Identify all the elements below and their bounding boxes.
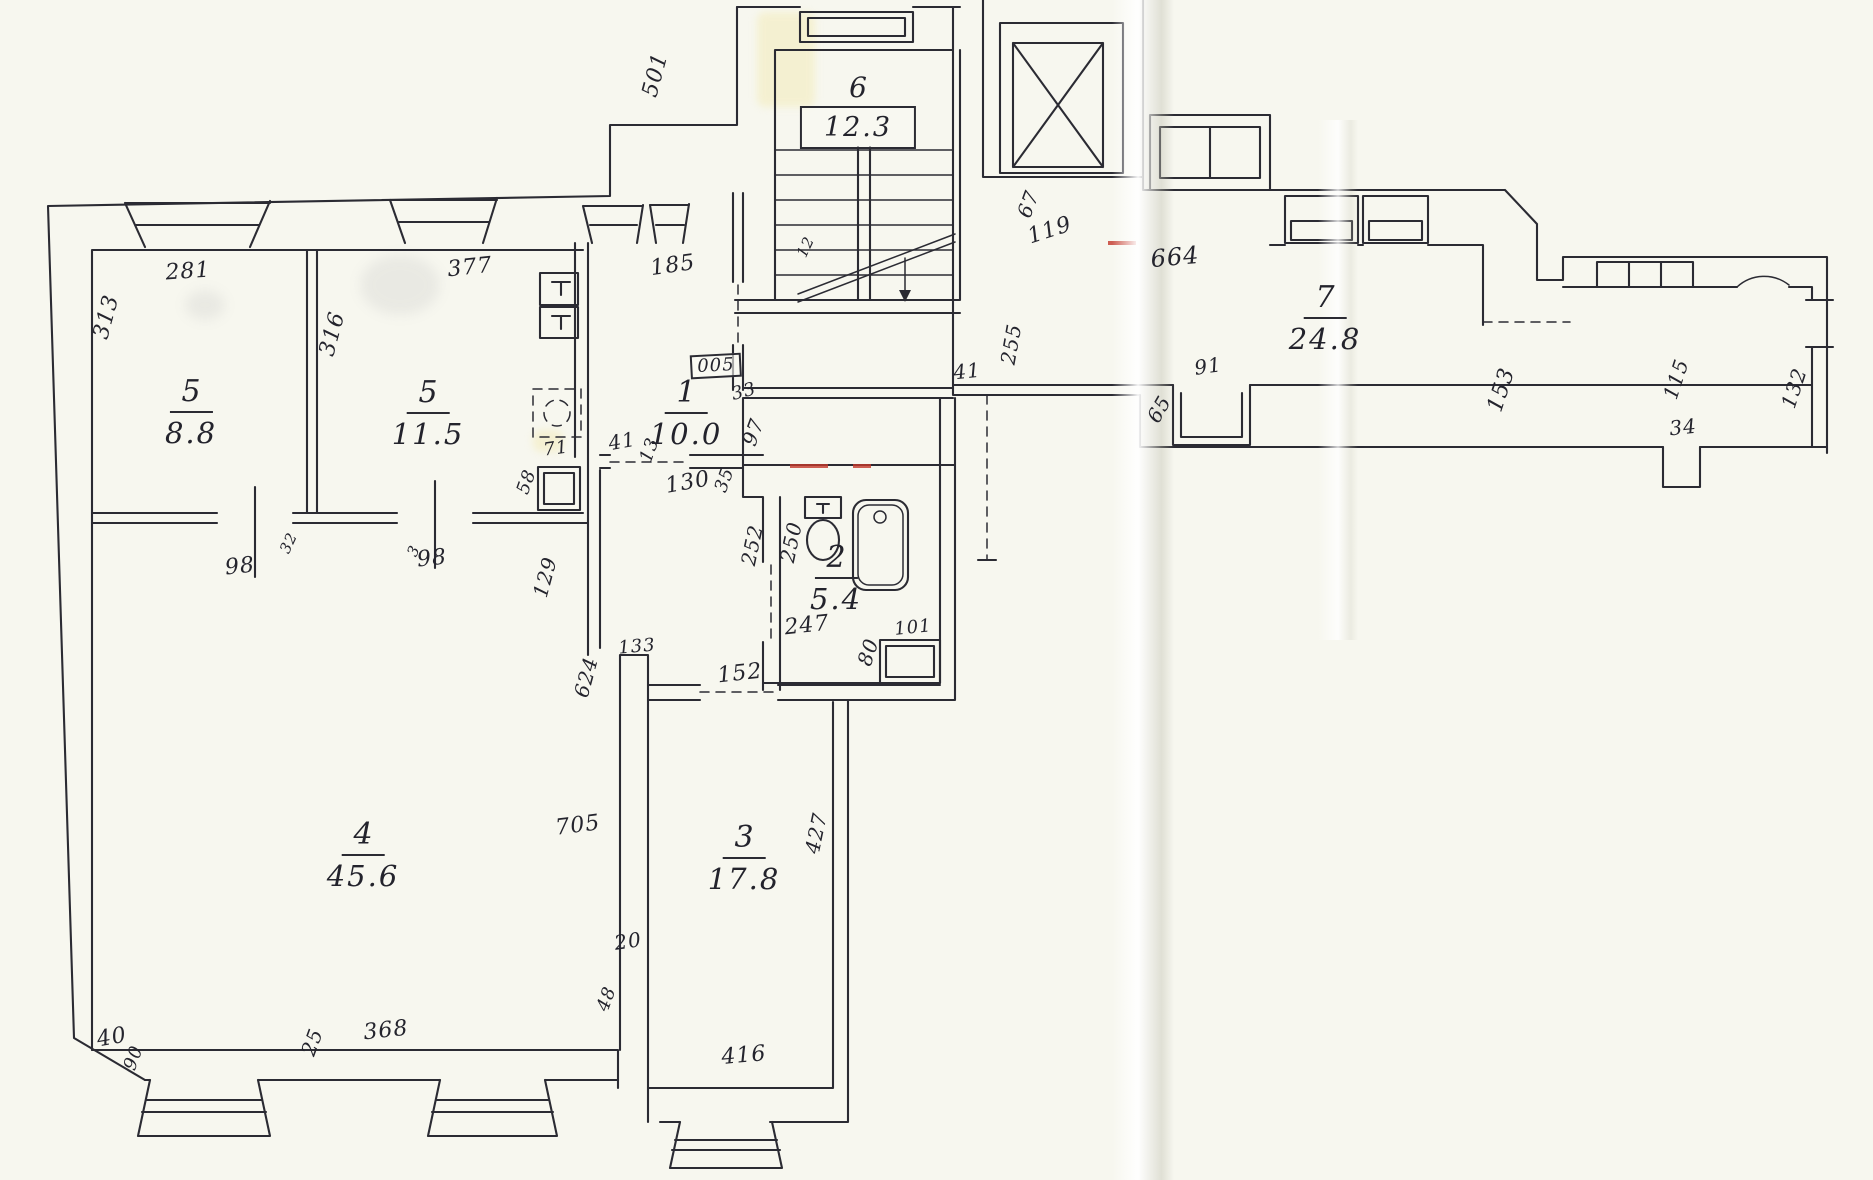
elevator-icon: [983, 0, 1143, 177]
room-label: 445.6: [327, 817, 400, 893]
dimension-label: 34: [1668, 416, 1697, 439]
dimension-label: 101: [893, 617, 932, 639]
room-number: 4: [341, 817, 384, 856]
dimension-label: 98: [224, 554, 256, 579]
dimension-label: 416: [721, 1043, 768, 1069]
door-swing-arc: [1737, 276, 1789, 287]
room-area: 8.8: [165, 413, 217, 450]
wash-basin-icon: [880, 640, 940, 683]
dimension-label: 247: [783, 613, 830, 640]
room-area: 5.4: [810, 579, 862, 616]
room-label: 110.0: [650, 375, 723, 451]
dimension-label: 152: [716, 661, 763, 688]
dimension-label: 255: [998, 322, 1025, 366]
kitchen-sink-icon: [540, 273, 578, 338]
dimension-label: 41: [952, 360, 981, 383]
dimension-label: 40: [95, 1025, 128, 1052]
room-number: 7: [1303, 280, 1346, 319]
room-label: 58.8: [165, 374, 217, 450]
window-icon-bottom: [138, 1080, 782, 1168]
dimension-label: 705: [554, 812, 601, 839]
room-number: 5: [169, 374, 212, 413]
room-number: 3: [722, 820, 765, 859]
room-number: 1: [664, 375, 707, 414]
room-label: 25.4: [810, 540, 862, 616]
room-label: 317.8: [708, 820, 781, 896]
stairs-icon: [735, 7, 960, 313]
room-number: 6: [845, 71, 871, 106]
dimension-label: 71: [542, 438, 569, 459]
dimension-label: 41: [607, 429, 638, 453]
window-icon-top: [125, 198, 689, 247]
room-area: 24.8: [1289, 319, 1362, 356]
floorplan-scan: 2813133773161855011267119664916525541153…: [0, 0, 1873, 1180]
dimension-label: 20: [613, 929, 643, 953]
dimension-label: 368: [362, 1018, 409, 1045]
room-number: 5: [406, 375, 449, 414]
room-number: 2: [814, 540, 857, 579]
room-area: 17.8: [708, 859, 781, 896]
dimension-label: 664: [1150, 243, 1201, 271]
room-label: 612.3: [800, 71, 916, 149]
dimension-label: 377: [446, 255, 493, 282]
dimension-label: 133: [618, 636, 657, 657]
room-area: 11.5: [392, 414, 465, 451]
floorplan-drawing: [0, 0, 1873, 1180]
room-area: 10.0: [650, 414, 723, 451]
room-label: 724.8: [1289, 280, 1362, 356]
dimension-label: 91: [1193, 354, 1223, 378]
room-label: 511.5: [392, 375, 465, 451]
dimension-label: 281: [165, 259, 211, 284]
room-area: 12.3: [800, 106, 916, 149]
room-area: 45.6: [327, 856, 400, 893]
walls-right-wing: [953, 115, 1833, 560]
